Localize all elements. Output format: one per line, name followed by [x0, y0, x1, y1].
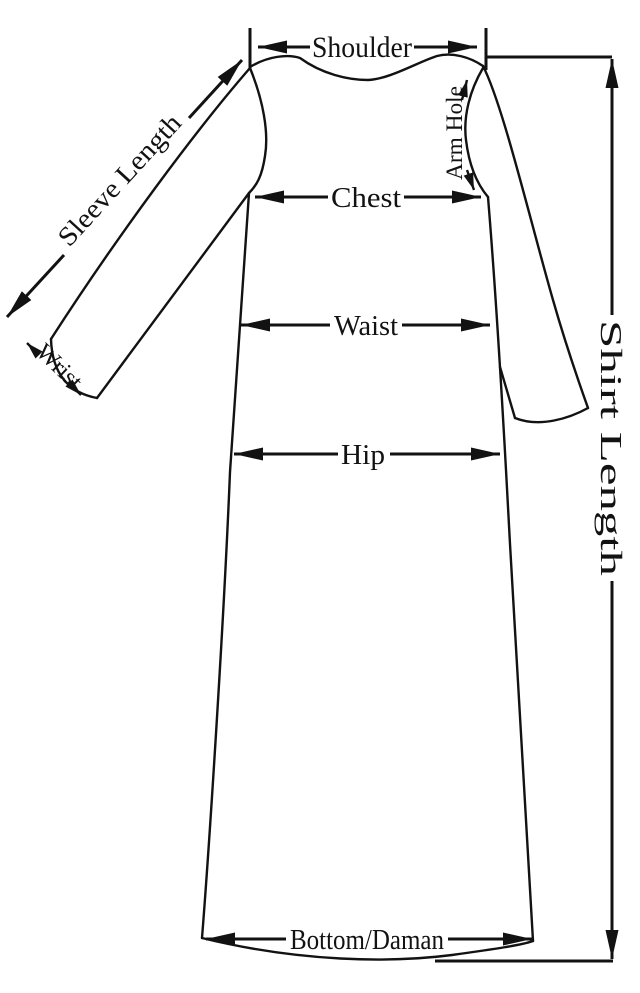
right-sleeve-cuff [515, 408, 588, 422]
hip-label: Hip [341, 440, 385, 471]
garment-outline [51, 55, 588, 960]
shirt-length-dimension: Shirt Length [435, 57, 629, 961]
shirt-length-label: Shirt Length [594, 320, 629, 577]
wrist-dimension: Wrist [27, 339, 88, 395]
body-left-edge [202, 193, 249, 938]
chest-dimension: Chest [255, 183, 481, 214]
body-right-edge [488, 197, 533, 941]
bottom-daman-label: Bottom/Daman [290, 925, 444, 956]
sleeve-length-arrow-down [7, 255, 64, 317]
waist-dimension: Waist [241, 311, 490, 342]
shirt-measurement-diagram: Shoulder Sleeve Length Wrist Arm Hole Ch… [0, 0, 640, 993]
left-armhole-curve [249, 68, 266, 193]
left-sleeve-inner-edge [97, 193, 249, 398]
wrist-label: Wrist [30, 339, 87, 395]
sleeve-length-label: Sleeve Length [52, 107, 188, 252]
shoulder-label: Shoulder [312, 31, 412, 64]
shoulder-dimension: Shoulder [250, 28, 486, 70]
arm-hole-label: Arm Hole [442, 86, 467, 180]
waist-label: Waist [334, 311, 398, 342]
measurement-diagram-page: Shoulder Sleeve Length Wrist Arm Hole Ch… [0, 0, 640, 993]
sleeve-length-dimension: Sleeve Length [7, 60, 242, 317]
hip-dimension: Hip [234, 440, 500, 471]
chest-label: Chest [331, 183, 401, 214]
